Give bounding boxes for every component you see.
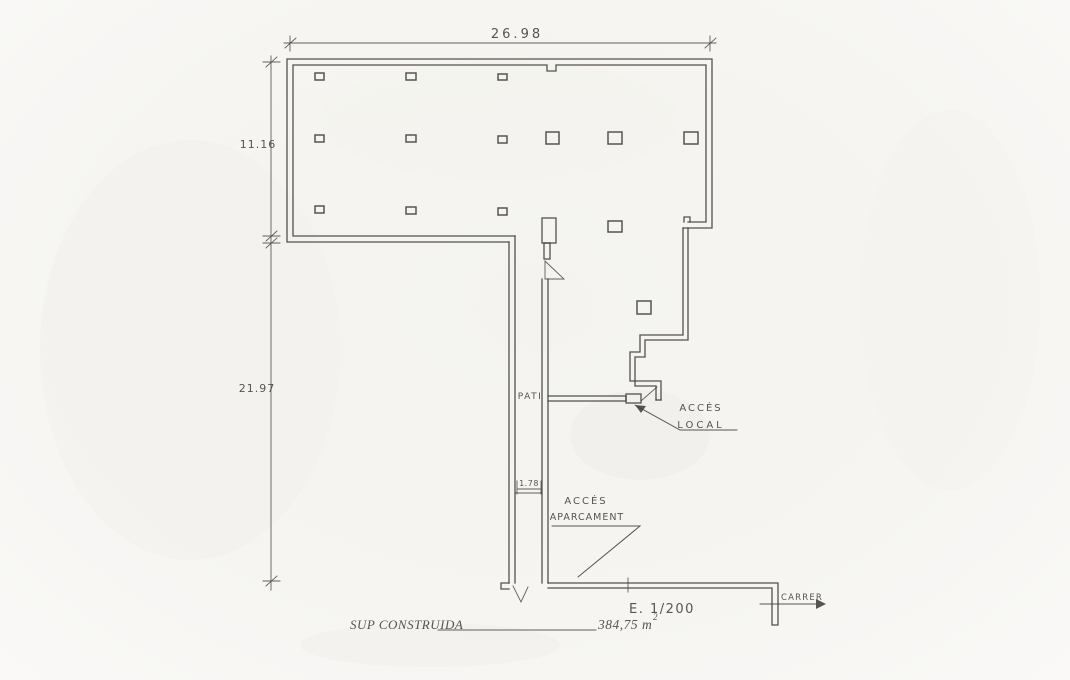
corridor-foot <box>501 583 509 589</box>
column-large <box>608 221 622 232</box>
column <box>315 206 324 213</box>
dimension-pati-width: 1.78 <box>517 479 541 494</box>
label-scale: E. 1/200 <box>629 602 695 617</box>
corridor-pier <box>542 218 556 243</box>
break-mark <box>513 586 528 602</box>
acces-local-door <box>548 387 657 403</box>
dim-label-lower-left-height: 21.97 <box>239 382 276 395</box>
door-jamb <box>544 243 550 259</box>
label-acces-local-line1: ACCÉS <box>679 401 722 414</box>
column <box>406 207 416 214</box>
floor-plan-drawing: 26.98 11.16 21.97 1.78 PATI ACCÉS LOCAL <box>0 0 1070 680</box>
area-value: 384,75 m <box>597 617 652 632</box>
dim-label-upper-left-height: 11.16 <box>240 138 277 151</box>
column <box>315 135 324 142</box>
label-acces-local-line2: LOCAL <box>677 420 724 431</box>
column-large <box>637 301 651 314</box>
column <box>315 73 324 80</box>
label-acces-aparcament: ACCÉS APARCAMENT <box>550 494 640 577</box>
label-pati: PATI <box>518 392 542 402</box>
leader-line <box>552 526 640 577</box>
label-carrer: CARRER <box>760 593 826 609</box>
door-swing <box>545 261 564 279</box>
paper-texture <box>40 60 1040 667</box>
scanned-floor-plan-page: 26.98 11.16 21.97 1.78 PATI ACCÉS LOCAL <box>0 0 1070 680</box>
label-acces-aparcament-line2: APARCAMENT <box>550 512 625 523</box>
dimension-tick-top <box>263 57 280 67</box>
dimension-top: 26.98 <box>284 27 716 51</box>
column <box>498 208 507 215</box>
area-value-exponent: 2 <box>653 612 658 622</box>
dim-label-pati-width: 1.78 <box>519 479 539 488</box>
pati-corridor-walls <box>501 218 564 602</box>
label-acces-aparcament-line1: ACCÉS <box>564 494 607 507</box>
wall-nub <box>684 217 690 222</box>
dim-label-top-width: 26.98 <box>491 27 543 42</box>
label-carrer-text: CARRER <box>781 593 823 603</box>
dimension-tick-bottom <box>263 576 280 586</box>
column-large <box>684 132 698 144</box>
